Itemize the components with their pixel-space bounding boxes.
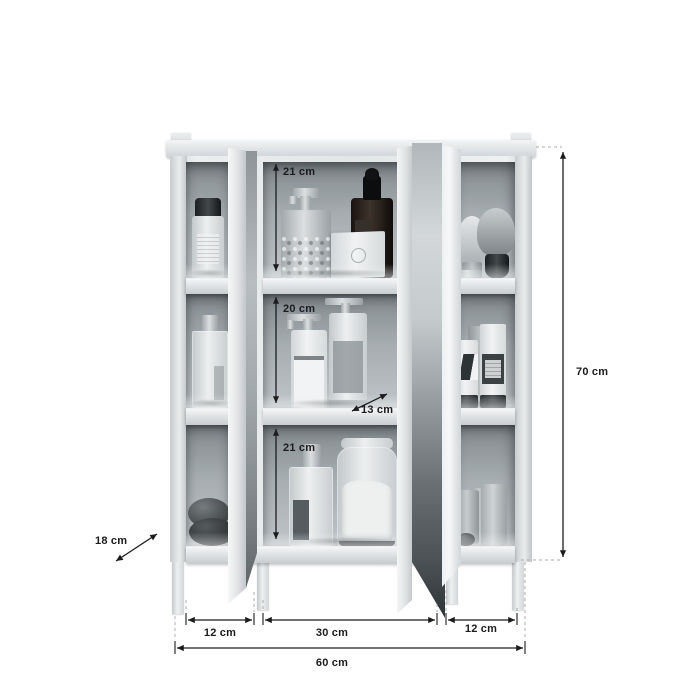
cosmetic-tube xyxy=(480,324,506,396)
dim-label-center-column-width: 30 cm xyxy=(316,627,348,639)
product-shadow xyxy=(287,537,402,546)
glass-jar xyxy=(337,447,397,546)
product-shadow xyxy=(455,399,511,408)
tube-label xyxy=(482,354,504,384)
dispenser-texture xyxy=(281,236,331,278)
compartment-left-top xyxy=(186,162,232,278)
shaving-brush-bristles xyxy=(477,208,515,256)
center-mirror-door-bottom-tip xyxy=(412,562,445,618)
dim-label-side-depth: 18 cm xyxy=(95,535,127,547)
shelf-front xyxy=(455,278,515,294)
pump-bottle xyxy=(291,330,327,408)
dim-label-top-shelf-height: 21 cm xyxy=(283,166,315,178)
compartment-right-bottom xyxy=(455,424,515,546)
dim-label-total-width: 60 cm xyxy=(316,657,348,669)
compartment-right-top xyxy=(455,162,515,278)
shelf-front xyxy=(186,278,232,294)
cosmetic-box xyxy=(331,231,385,278)
cabinet-right-side-panel xyxy=(515,156,532,562)
shelf-front xyxy=(455,408,515,425)
product-shadow xyxy=(188,269,230,278)
perfume-bottle xyxy=(192,331,228,408)
dim-label-left-column-width: 12 cm xyxy=(204,627,236,639)
perfume-label xyxy=(214,366,224,400)
tube-cap xyxy=(480,395,506,408)
perfume-spray-bottle xyxy=(289,467,333,546)
product-shadow xyxy=(188,399,232,408)
cabinet-leg xyxy=(172,562,184,614)
center-mirror-door-edge-right xyxy=(442,145,461,587)
dim-label-shelf-depth: 13 cm xyxy=(361,404,393,416)
compartment-right-middle xyxy=(455,293,515,408)
cabinet-leg xyxy=(257,562,269,610)
center-mirror-door-edge-left xyxy=(397,146,412,614)
dim-label-bottom-shelf-height: 21 cm xyxy=(283,442,315,454)
bottle xyxy=(192,216,224,278)
dim-label-total-height: 70 cm xyxy=(576,366,608,378)
dropper-bulb xyxy=(365,168,379,180)
candle xyxy=(481,484,507,546)
dim-label-right-column-width: 12 cm xyxy=(465,623,497,635)
tall-pump-bottle xyxy=(329,313,367,408)
pump-bottle-label xyxy=(294,356,324,406)
shaving-brush-handle xyxy=(485,254,509,278)
compartment-left-middle xyxy=(186,293,232,408)
tall-pump-bottle-label xyxy=(333,341,363,393)
perfume-label xyxy=(293,500,309,540)
dim-label-middle-shelf-height: 20 cm xyxy=(283,303,315,315)
compartment-left-bottom xyxy=(186,424,232,546)
tube-label-text-lines xyxy=(485,360,501,378)
dispenser-spout xyxy=(289,196,297,204)
bottle-label xyxy=(197,234,219,264)
product-shadow xyxy=(277,269,397,278)
furniture-dimension-diagram: 21 cm 20 cm 21 cm 13 cm 18 cm 12 cm 30 c… xyxy=(0,0,700,700)
cabinet-leg xyxy=(512,562,524,610)
left-mirror-door-glass xyxy=(246,151,257,588)
center-mirror-door-glass xyxy=(412,143,442,562)
shaving-brush-ferrule xyxy=(462,262,482,274)
bath-salts xyxy=(342,480,392,542)
soap-dispenser xyxy=(281,210,331,278)
stone xyxy=(189,518,232,546)
box-emblem xyxy=(351,248,366,264)
cabinet-left-side-panel xyxy=(170,156,187,562)
pump-nozzle xyxy=(287,320,294,329)
left-mirror-door-edge xyxy=(228,148,246,604)
shelf-front xyxy=(186,408,232,425)
